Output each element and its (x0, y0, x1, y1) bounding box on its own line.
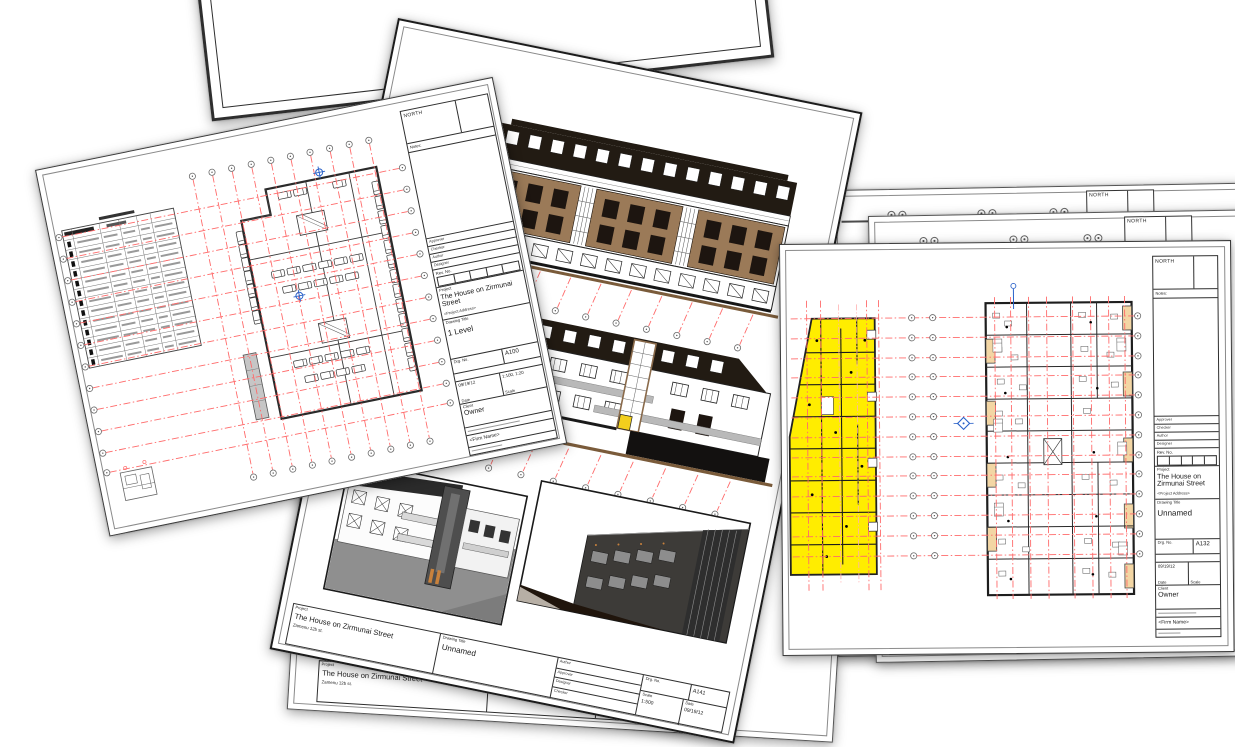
project-section: Project The House on Zirmunai Street <Pr… (1155, 465, 1219, 498)
perspective-view-street (517, 481, 750, 643)
notes-area (409, 135, 513, 239)
ramp (243, 353, 269, 420)
floorplan-sheet: NORTH Notes: Approver Checker Author Des… (779, 240, 1235, 656)
drawing-title-section: Drawing Title Unnamed (1155, 498, 1219, 539)
client-name: Owner (1156, 591, 1220, 601)
detail-drawing (119, 459, 157, 500)
titleblock-floorplan: NORTH Notes: Approver Checker Author Des… (1152, 255, 1221, 638)
sheet-number-row: Drg. No. A132 (1156, 538, 1220, 554)
notes-area (1153, 297, 1218, 416)
scale-value (1188, 562, 1220, 564)
section-marker (954, 417, 974, 429)
north-label: NORTH (1153, 256, 1193, 288)
drawing-title: Unnamed (1155, 505, 1219, 523)
client-section: Client Owner (1156, 584, 1220, 609)
north-box: NORTH (1153, 256, 1217, 289)
drawing-sheet-collage: NORTH NORTH Project The House on Zirmuna… (0, 0, 1235, 747)
apartment-plan (986, 302, 1135, 595)
yellow-entrance-door (618, 414, 633, 430)
date-scale-row: 09/19/12 Date Scale (1156, 561, 1220, 585)
project-name: The House on Zirmunai Street (1155, 472, 1219, 490)
revision-row: Rev. No. (1155, 447, 1219, 466)
project-address: <Project Address> (1155, 489, 1219, 497)
date-value: 09/19/12 (1156, 562, 1188, 569)
sheet-number: A132 (1193, 539, 1220, 553)
firm-name: <Firm Name> (1156, 616, 1220, 629)
